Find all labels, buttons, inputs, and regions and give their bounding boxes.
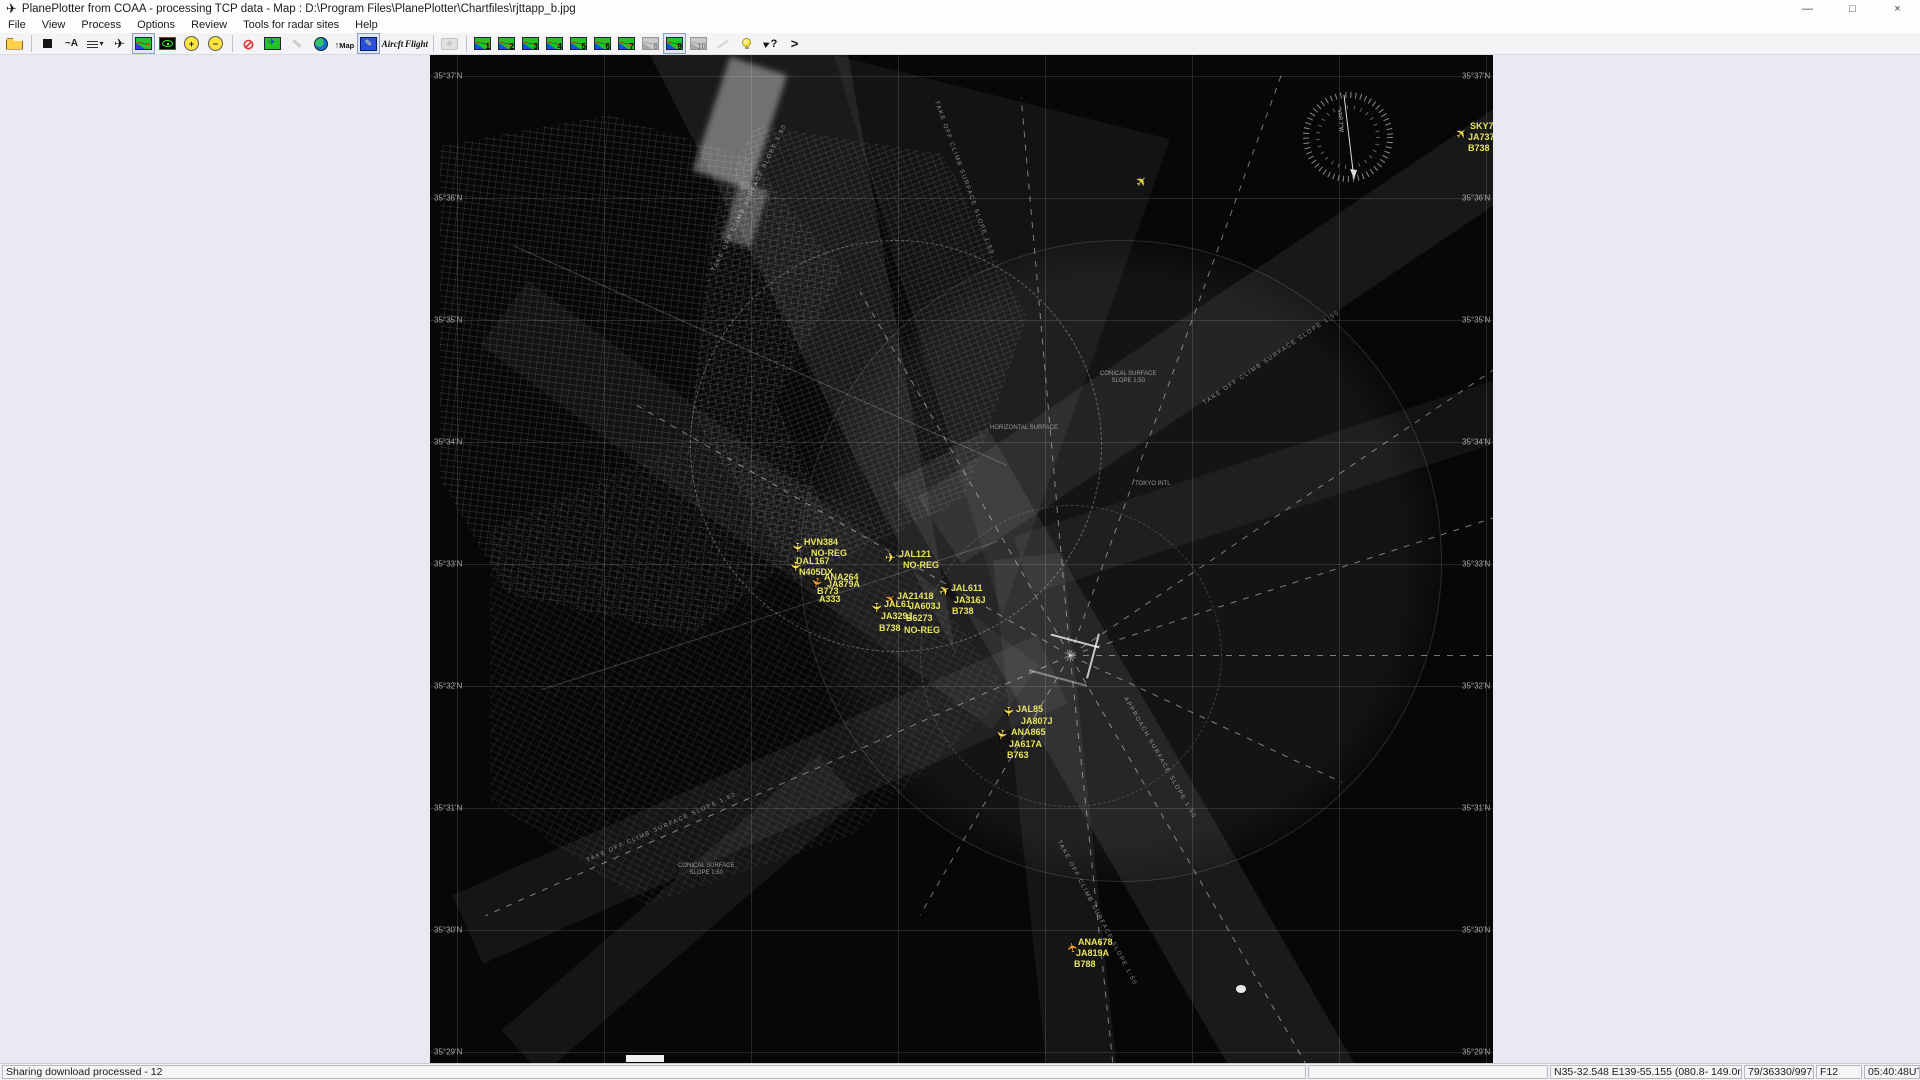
- chart-9-button[interactable]: 9: [663, 33, 686, 54]
- longitude-gridline: [1045, 55, 1046, 1063]
- radar-chart-map[interactable]: VAR 7°W 35°37'N35°37'N35°36'N35°36'N35°3…: [430, 55, 1493, 1063]
- flight-table-button[interactable]: Flight: [405, 33, 428, 54]
- compass-rose: VAR 7°W: [1302, 91, 1394, 183]
- latitude-label-left: 35°37'N: [434, 72, 462, 81]
- message-counters: 79/36330/9976: [1744, 1065, 1814, 1079]
- surface-label: CONICAL SURFACE SLOPE 1:50: [678, 863, 734, 877]
- surface-label: TOKYO INTL: [1135, 481, 1171, 488]
- aircraft-label[interactable]: NO-REG: [904, 625, 940, 635]
- latitude-label-left: 35°34'N: [434, 438, 462, 447]
- latitude-gridline: [430, 686, 1493, 687]
- aircraft-label[interactable]: JAL121: [899, 549, 931, 559]
- aircraft-label[interactable]: ANA865: [1011, 727, 1046, 737]
- aircraft-label[interactable]: SKY717: [1470, 121, 1493, 131]
- aircraft-label[interactable]: B763: [1007, 750, 1029, 760]
- menu-options[interactable]: Options: [129, 18, 183, 33]
- latitude-label-left: 35°29'N: [434, 1048, 462, 1057]
- tools-button[interactable]: [285, 33, 308, 54]
- aircraft-label[interactable]: DAL167: [796, 556, 830, 566]
- chart-7-button[interactable]: 7: [615, 33, 638, 54]
- draw-line-button[interactable]: [711, 33, 734, 54]
- latitude-label-right: 35°31'N: [1462, 804, 1490, 813]
- latitude-gridline: [430, 564, 1493, 565]
- aircraft-label[interactable]: JAL611: [951, 583, 983, 593]
- menu-bar: FileViewProcessOptionsReviewTools for ra…: [0, 18, 1920, 33]
- aircraft-label[interactable]: HVN384: [804, 537, 838, 547]
- function-key-indicator: F12: [1816, 1065, 1862, 1079]
- latitude-gridline: [430, 930, 1493, 931]
- chart-10-button[interactable]: 10: [687, 33, 710, 54]
- chart-edit-button[interactable]: ✎: [357, 33, 380, 54]
- aircraft-label[interactable]: ANA678: [1078, 937, 1113, 947]
- latitude-label-right: 35°32'N: [1462, 682, 1490, 691]
- context-help-button[interactable]: ?: [759, 33, 782, 54]
- menu-file[interactable]: File: [0, 18, 34, 33]
- compass-graphic: [1302, 91, 1394, 183]
- title-bar: ✈ PlanePlotter from COAA - processing TC…: [0, 0, 1920, 19]
- longitude-gridline: [604, 55, 605, 1063]
- aircraft-view-button[interactable]: ✈: [261, 33, 284, 54]
- status-spare-panel: [1308, 1065, 1548, 1079]
- menu-help[interactable]: Help: [347, 18, 386, 33]
- map-up-button[interactable]: ↑Map: [333, 33, 356, 54]
- latitude-label-left: 35°32'N: [434, 682, 462, 691]
- longitude-gridline: [898, 55, 899, 1063]
- longitude-gridline: [1192, 55, 1193, 1063]
- longitude-gridline: [1339, 55, 1340, 1063]
- maximize-button[interactable]: □: [1830, 0, 1875, 18]
- utc-clock: 05:40:48UTC: [1864, 1065, 1920, 1079]
- latitude-label-left: 35°36'N: [434, 194, 462, 203]
- open-file-button[interactable]: [3, 33, 26, 54]
- aircraft-label[interactable]: A333: [819, 594, 841, 604]
- hint-button[interactable]: [735, 33, 758, 54]
- latitude-gridline: [430, 320, 1493, 321]
- latitude-label-left: 35°33'N: [434, 560, 462, 569]
- latitude-label-right: 35°35'N: [1462, 316, 1490, 325]
- chart-4-button[interactable]: 4: [543, 33, 566, 54]
- latitude-gridline: [430, 76, 1493, 77]
- workspace: VAR 7°W 35°37'N35°37'N35°36'N35°36'N35°3…: [0, 55, 1920, 1063]
- latitude-label-left: 35°31'N: [434, 804, 462, 813]
- latitude-gridline: [430, 1052, 1493, 1053]
- web-lookup-button[interactable]: [309, 33, 332, 54]
- more-tools-button[interactable]: >: [783, 33, 806, 54]
- chart-mark: [1236, 985, 1246, 993]
- zoom-in-button[interactable]: +: [180, 33, 203, 54]
- toolbar-separator: [466, 35, 467, 52]
- aircraft-label[interactable]: B738: [952, 606, 974, 616]
- toolbar-separator: [232, 35, 233, 52]
- signal-view-button[interactable]: ~A: [60, 33, 83, 54]
- status-bar: Sharing download processed - 12 N35-32.5…: [0, 1063, 1920, 1080]
- aircraft-label[interactable]: JA807J: [1021, 716, 1053, 726]
- surface-label: HORIZONTAL SURFACE: [990, 425, 1058, 432]
- zoom-out-button[interactable]: −: [204, 33, 227, 54]
- chart-3-button[interactable]: 3: [519, 33, 542, 54]
- status-message: Sharing download processed - 12: [2, 1065, 1306, 1079]
- latitude-label-right: 35°34'N: [1462, 438, 1490, 447]
- latitude-label-left: 35°35'N: [434, 316, 462, 325]
- chart-1-button[interactable]: 1: [471, 33, 494, 54]
- window-controls: —□×: [1785, 0, 1920, 18]
- aircraft-label[interactable]: JA737: [1468, 132, 1493, 142]
- longitude-gridline: [751, 55, 752, 1063]
- toolbar: ~A▾✈+−⊘✈↑Map✎AircftFlight12345678910?>: [0, 33, 1920, 55]
- chart-8-button[interactable]: 8: [639, 33, 662, 54]
- aircraft-icon[interactable]: ✈: [791, 542, 804, 553]
- app-icon: ✈: [6, 0, 17, 18]
- aircraft-label[interactable]: JA316J: [954, 595, 986, 605]
- aircraft-label[interactable]: JAL85: [1016, 704, 1043, 714]
- menu-tools-for-radar-sites[interactable]: Tools for radar sites: [235, 18, 347, 33]
- window-title: PlanePlotter from COAA - processing TCP …: [22, 3, 576, 15]
- latitude-label-left: 35°30'N: [434, 926, 462, 935]
- message-list-button[interactable]: ▾: [84, 33, 107, 54]
- latitude-label-right: 35°29'N: [1462, 1048, 1490, 1057]
- chart-2-button[interactable]: 2: [495, 33, 518, 54]
- stop-process-button[interactable]: [36, 33, 59, 54]
- aircraft-label[interactable]: JAL61: [884, 599, 911, 609]
- latitude-label-right: 35°37'N: [1462, 72, 1490, 81]
- surface-label: CONICAL SURFACE SLOPE 1:50: [1100, 371, 1156, 385]
- cursor-position: N35-32.548 E139-55.155 (080.8- 149.0nm): [1550, 1065, 1742, 1079]
- toolbar-separator: [433, 35, 434, 52]
- latitude-label-right: 35°36'N: [1462, 194, 1490, 203]
- aircraft-label[interactable]: NO-REG: [903, 560, 939, 570]
- latitude-label-right: 35°33'N: [1462, 560, 1490, 569]
- aircraft-label[interactable]: B788: [1074, 959, 1096, 969]
- snapshot-button[interactable]: [438, 33, 461, 54]
- aircraft-label[interactable]: JA819A: [1076, 948, 1109, 958]
- latitude-label-right: 35°30'N: [1462, 926, 1490, 935]
- latitude-gridline: [430, 442, 1493, 443]
- latitude-gridline: [430, 198, 1493, 199]
- aircraft-label[interactable]: JA603J: [909, 601, 941, 611]
- share-aircraft-button[interactable]: ✈: [108, 33, 131, 54]
- menu-view[interactable]: View: [34, 18, 74, 33]
- planeplotter-window: ✈ PlanePlotter from COAA - processing TC…: [0, 0, 1920, 1080]
- aircraft-label[interactable]: B738: [879, 623, 901, 633]
- chart-5-button[interactable]: 5: [567, 33, 590, 54]
- aircraft-label[interactable]: B738: [1468, 143, 1490, 153]
- aircraft-icon[interactable]: ✈: [885, 551, 896, 564]
- toolbar-separator: [31, 35, 32, 52]
- chart-6-button[interactable]: 6: [591, 33, 614, 54]
- menu-process[interactable]: Process: [73, 18, 129, 33]
- minimize-button[interactable]: —: [1785, 0, 1830, 18]
- aircraft-table-button[interactable]: Aircft: [381, 33, 404, 54]
- radial-centerline: [1070, 655, 1493, 656]
- aircraft-label[interactable]: B6273: [906, 613, 933, 623]
- scale-box: [626, 1055, 664, 1062]
- latitude-gridline: [430, 808, 1493, 809]
- menu-review[interactable]: Review: [183, 18, 235, 33]
- radar-scope-button[interactable]: [156, 33, 179, 54]
- mute-alerts-button[interactable]: ⊘: [237, 33, 260, 54]
- aircraft-label[interactable]: JA617A: [1009, 739, 1042, 749]
- close-button[interactable]: ×: [1875, 0, 1920, 18]
- aircraft-icon[interactable]: ✈: [1002, 706, 1015, 717]
- chart-window-button[interactable]: [132, 33, 155, 54]
